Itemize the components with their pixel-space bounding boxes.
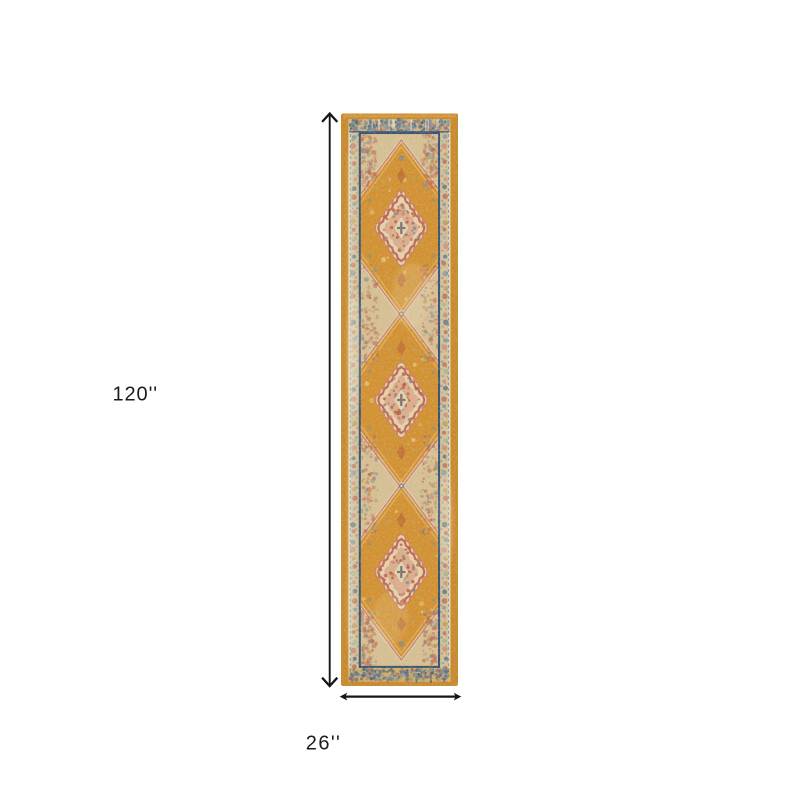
svg-text:120'': 120'' [113,384,159,406]
svg-text:26'': 26'' [306,733,341,755]
